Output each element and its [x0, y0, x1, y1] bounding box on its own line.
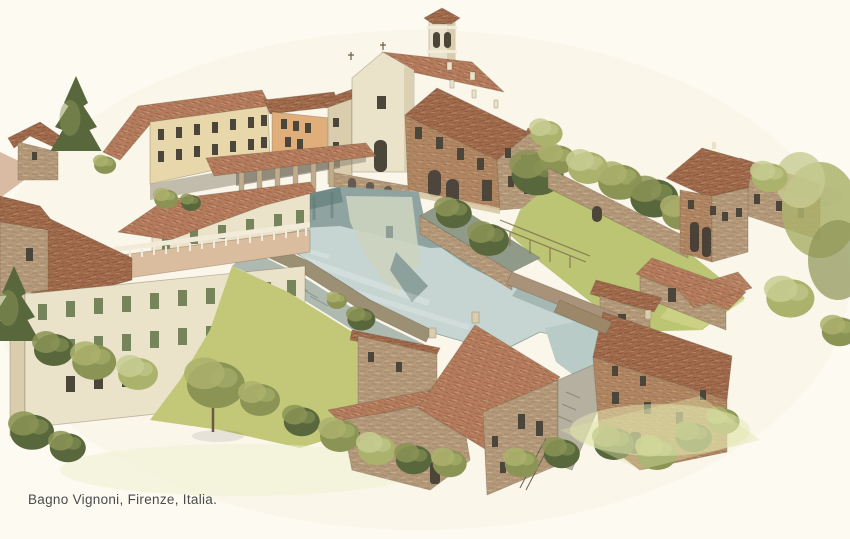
watercolor-painting — [0, 0, 850, 539]
illustration-canvas: Bagno Vignoni, Firenze, Italia. — [0, 0, 850, 539]
bell-tower — [424, 8, 460, 64]
caption: Bagno Vignoni, Firenze, Italia. — [28, 492, 217, 507]
